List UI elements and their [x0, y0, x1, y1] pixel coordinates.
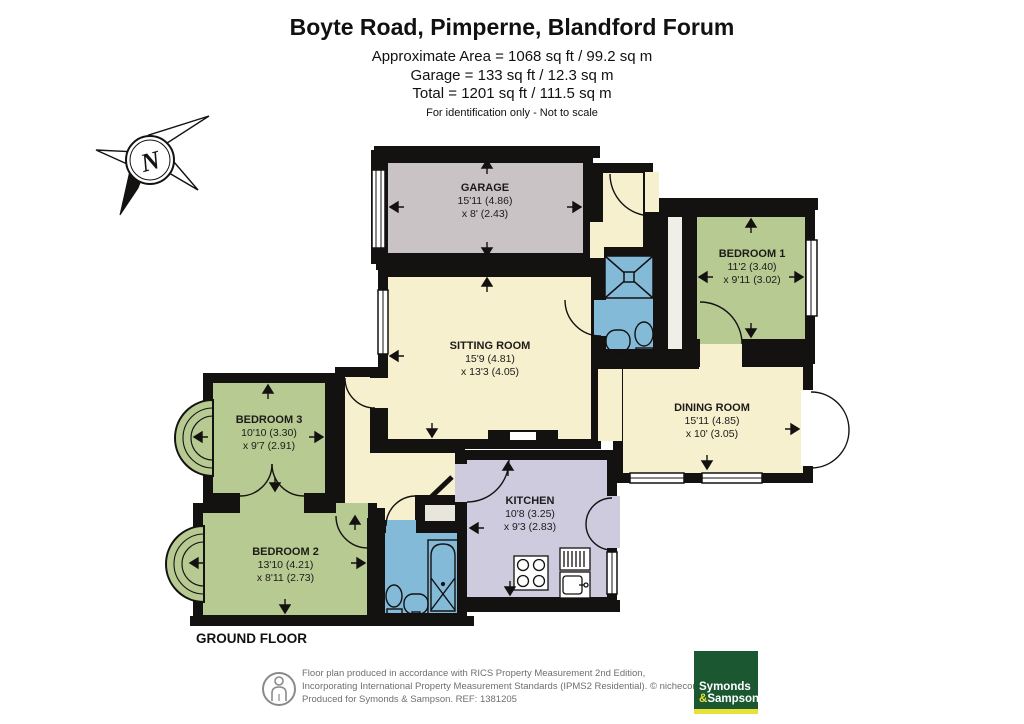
compass-icon: N — [96, 116, 209, 215]
hall-strip — [663, 212, 687, 360]
hob-icon — [514, 556, 548, 590]
window-bedroom1-right — [806, 240, 817, 316]
footer-line1: Floor plan produced in accordance with R… — [302, 667, 732, 680]
symonds-sampson-logo: Symonds &Sampson — [694, 651, 758, 714]
window-dining-bottom-2 — [702, 473, 762, 483]
footer-disclaimer: Floor plan produced in accordance with R… — [302, 667, 732, 706]
room-garage — [383, 158, 588, 258]
logo-text: Symonds &Sampson — [699, 681, 759, 705]
window-kitchen-right — [607, 552, 617, 594]
floor-plan-drawing: N — [0, 0, 1024, 724]
person-badge-icon — [263, 673, 295, 705]
floor-label: GROUND FLOOR — [196, 631, 307, 646]
shower-tray-icon — [605, 256, 653, 298]
window-dining-bottom-1 — [630, 473, 684, 483]
floorplan-page: Boyte Road, Pimperne, Blandford Forum Ap… — [0, 0, 1024, 724]
oven-icon — [560, 548, 590, 570]
room-bedroom3 — [208, 378, 330, 498]
window-sitting-left — [378, 290, 388, 354]
garage-door — [372, 170, 385, 248]
fireplace — [488, 430, 558, 448]
logo-yellow-bar — [694, 709, 758, 714]
rooms-layer — [198, 158, 810, 620]
room-bathroom — [380, 528, 462, 618]
cupboard — [420, 500, 460, 526]
bay-window-bedroom2 — [166, 526, 205, 602]
room-sitting — [383, 272, 596, 444]
footer-line2: Incorporating International Property Mea… — [302, 680, 732, 693]
sink-icon — [560, 572, 590, 598]
footer-line3: Produced for Symonds & Sampson. REF: 138… — [302, 693, 732, 706]
